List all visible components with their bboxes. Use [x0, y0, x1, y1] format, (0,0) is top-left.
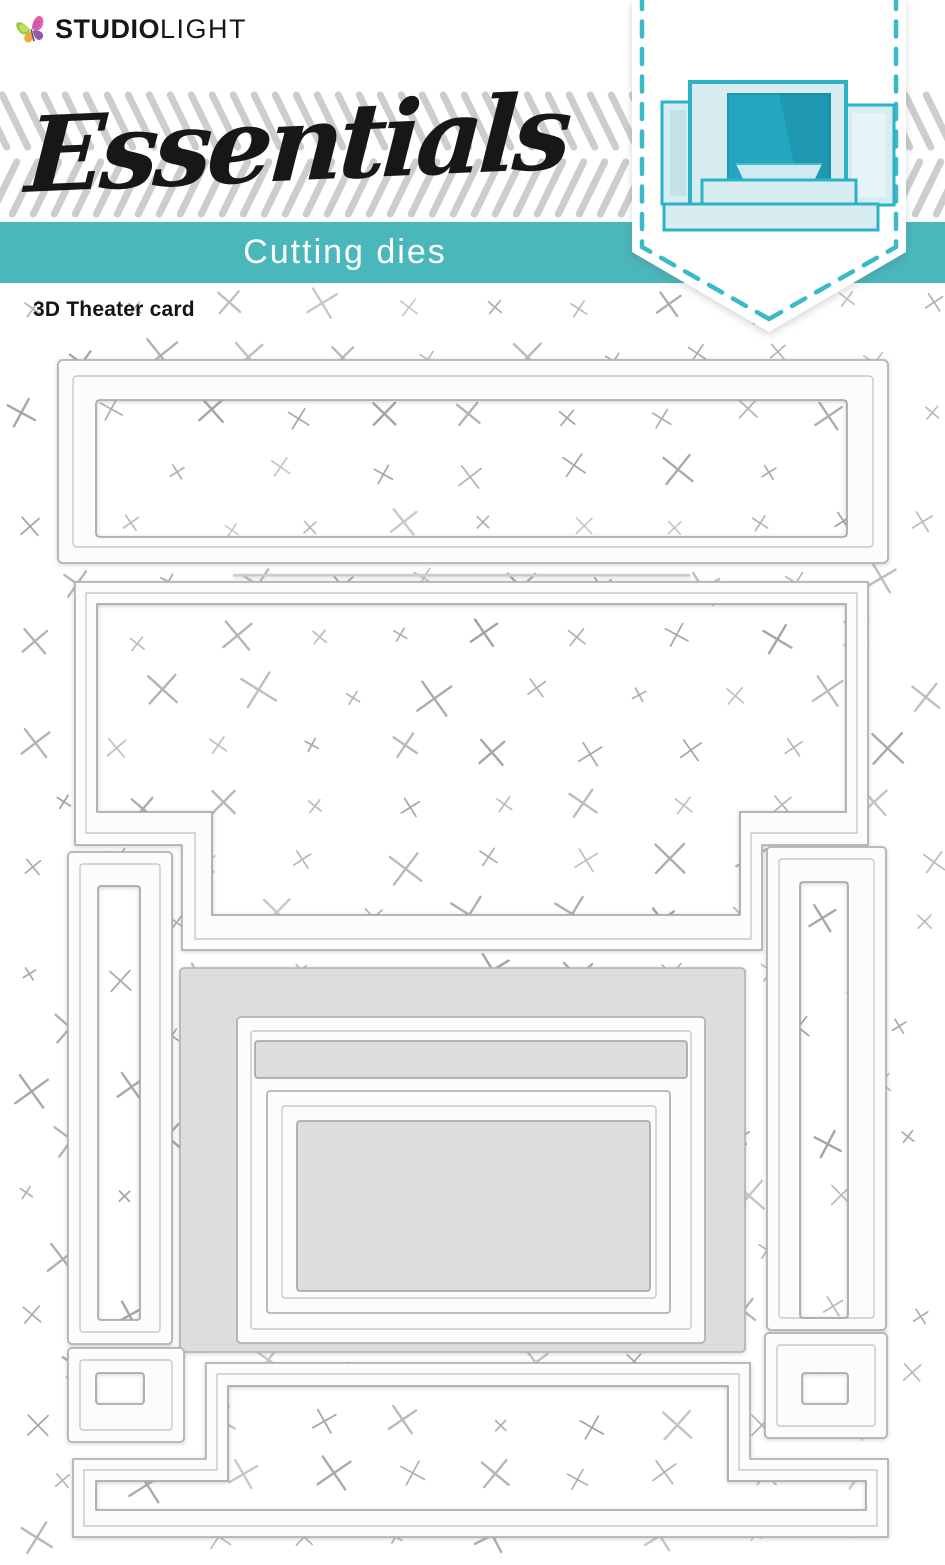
pennant-banner	[632, 0, 906, 340]
brand-name-light: LIGHT	[160, 14, 247, 45]
series-title: Essentials	[23, 72, 571, 216]
die-left-block	[68, 1348, 184, 1442]
card-base	[664, 204, 878, 230]
die-set	[58, 360, 888, 1537]
die-top-strip	[58, 360, 888, 563]
brand-logo: STUDIOLIGHT	[12, 10, 247, 48]
brand-name-bold: STUDIO	[55, 14, 160, 45]
card-stage-floor	[736, 164, 822, 181]
die-left-pillar	[68, 852, 172, 1344]
die-right-block	[765, 1333, 887, 1438]
product-photo-theater-card	[662, 82, 894, 230]
card-left-wing-shade	[670, 110, 686, 196]
product-sheet: STUDIOLIGHT Essentials Cutting dies 3D T…	[0, 0, 945, 1565]
product-name: 3D Theater card	[33, 298, 195, 322]
die-right-pillar	[767, 847, 886, 1330]
fold-line	[233, 574, 690, 577]
die-backdrop	[75, 582, 868, 950]
butterfly-icon	[12, 10, 50, 48]
